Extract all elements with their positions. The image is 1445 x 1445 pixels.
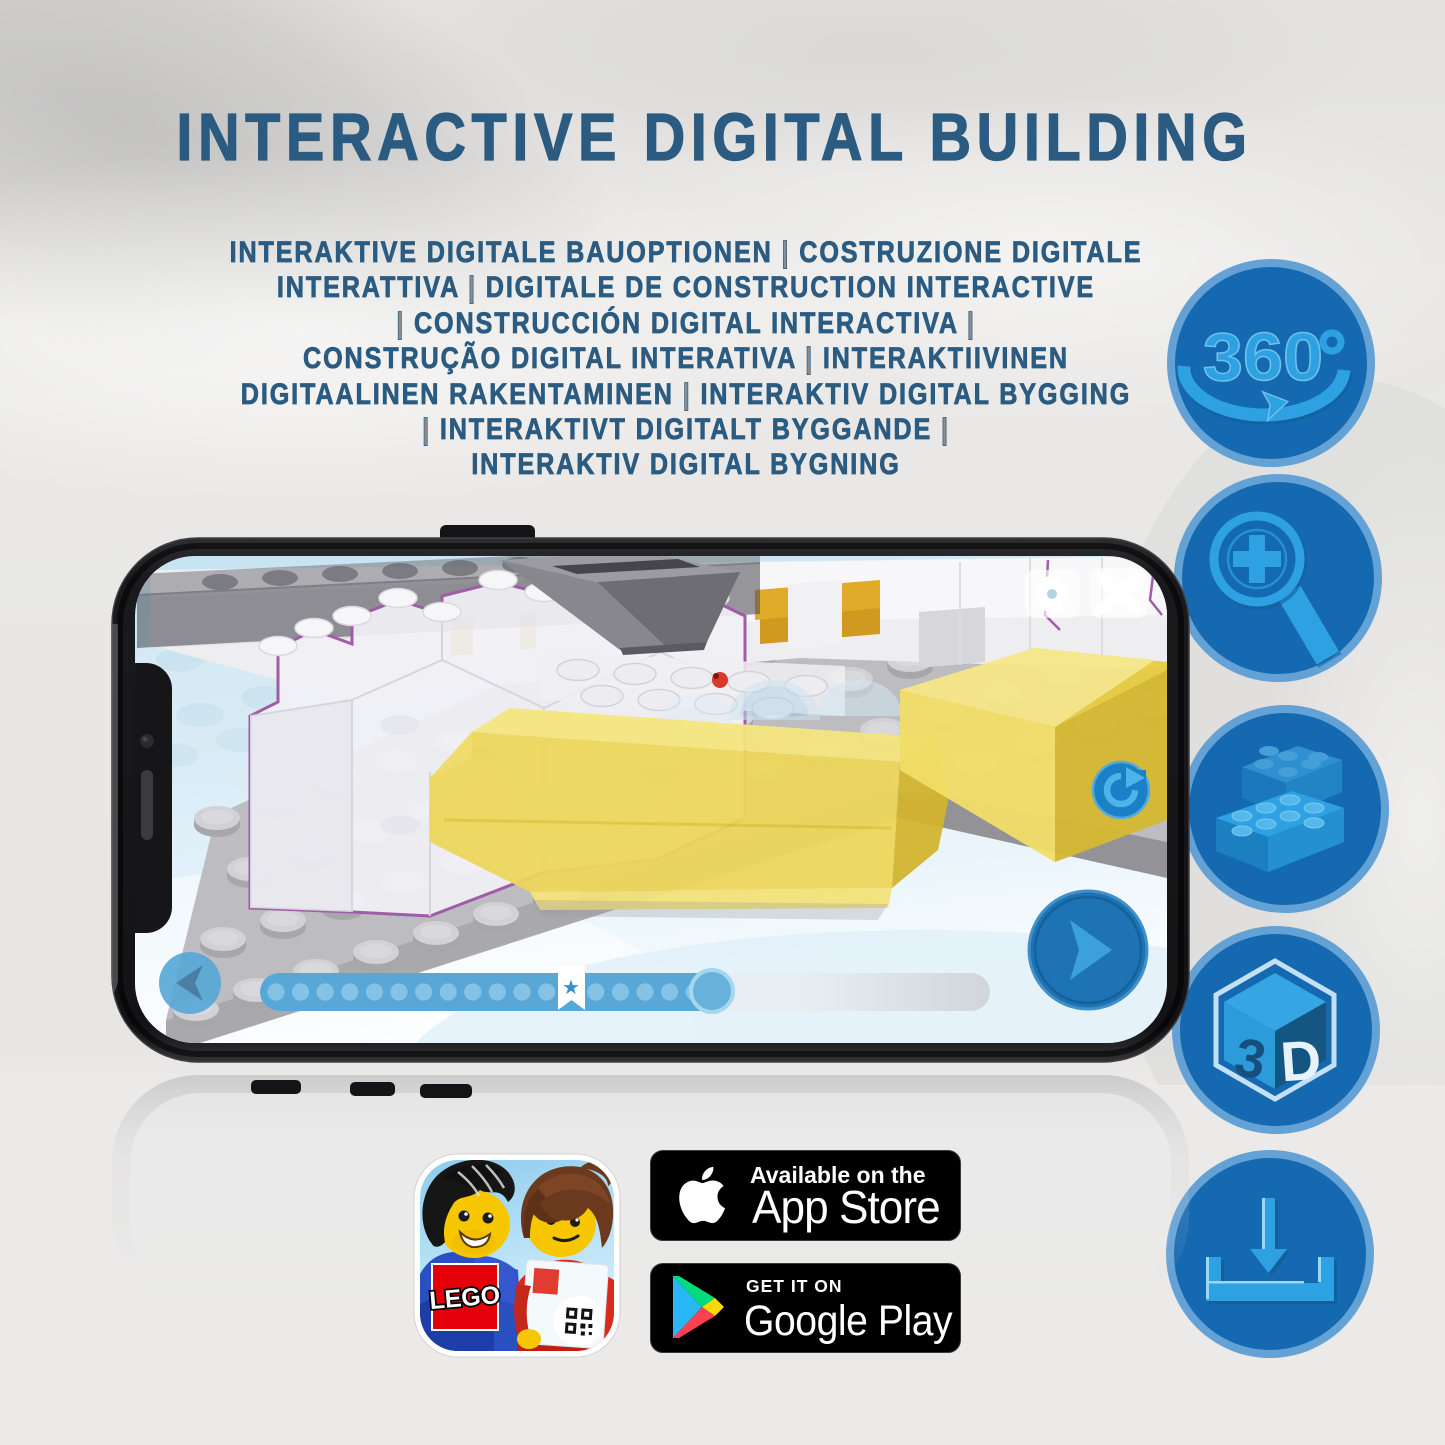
svg-text:D: D <box>1278 1028 1323 1094</box>
svg-text:★: ★ <box>562 977 580 999</box>
svg-text:360: 360 <box>1203 319 1323 395</box>
